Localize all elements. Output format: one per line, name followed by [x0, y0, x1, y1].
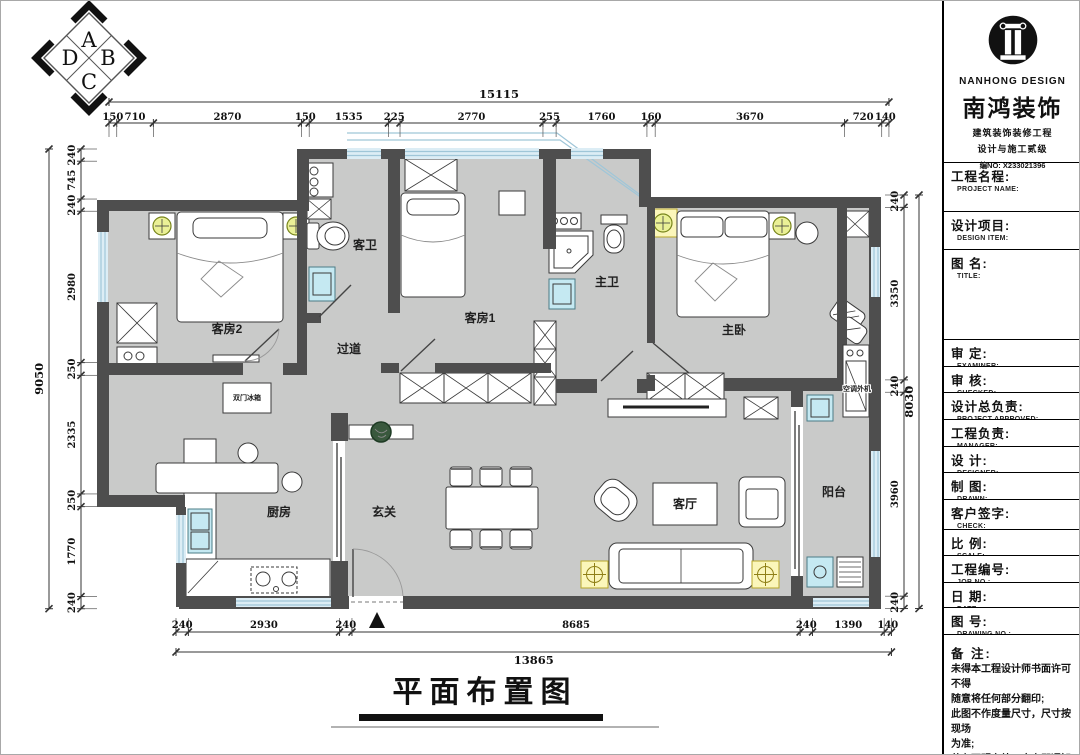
field-scale: 比 例: SCALE: [944, 529, 1080, 555]
dim-label: 140 [877, 620, 898, 631]
dim-label: 8685 [562, 620, 590, 631]
field-examiner: 审 定: EXAMINER: [944, 339, 1080, 366]
dim-label: 2930 [250, 620, 278, 631]
dim-label: 1770 [67, 538, 78, 566]
label-kitchen: 厨房 [267, 504, 291, 519]
compass-letter-d: D [62, 46, 79, 70]
drawing-title: 平面布置图 [331, 676, 659, 727]
dim-label: 2335 [67, 421, 78, 449]
dim-label: 9050 [32, 363, 46, 395]
label-guest-room2: 客房2 [211, 321, 243, 336]
dim-label: 2770 [458, 112, 486, 123]
field-drawing-no: 图 号: DRAWING NO.: [944, 607, 1080, 634]
field-design-item: 设计项目: DESIGN ITEM: [944, 211, 1080, 249]
field-manager: 工程负责: MANAGER: [944, 419, 1080, 446]
dim-label: 3960 [890, 480, 901, 508]
compass: A B C D [36, 5, 142, 111]
dim-label: 3350 [890, 280, 901, 308]
field-checked: 审 核: CHECKED: [944, 366, 1080, 392]
label-entry: 玄关 [372, 504, 396, 519]
company-header: NANHONG DESIGN 南鸿装饰 建筑装饰装修工程 设计与施工贰级 编NO… [944, 1, 1080, 162]
dim-label: 8030 [902, 386, 916, 418]
dim-label: 1390 [834, 620, 862, 631]
field-drawn: 制 图: DRAWN: [944, 472, 1080, 499]
dim-label: 140 [875, 112, 896, 123]
field-project-approved: 设计总负责: PROJECT APPROVED: [944, 392, 1080, 419]
cert-line2: 设计与施工贰级 [944, 142, 1080, 155]
dim-label: 240 [172, 620, 193, 631]
notes-section: 备 注: 未得本工程设计师书面许可不得 随意将任何部分翻印; 此图不作度量尺寸，… [944, 634, 1080, 755]
dim-label: 1535 [335, 112, 363, 123]
cert-line1: 建筑装饰装修工程 [944, 126, 1080, 139]
kitchen-slider [333, 441, 345, 561]
dim-label: 150 [295, 112, 316, 123]
label-ac-unit: 空调外机 [843, 384, 871, 393]
dining-table [446, 487, 538, 529]
dim-label: 150 [102, 112, 123, 123]
floor-plan: A B C D [1, 1, 942, 755]
dim-label: 240 [890, 191, 901, 212]
field-designer: 设 计: DESIGNER: [944, 446, 1080, 472]
washing-machine [807, 557, 833, 587]
title-block: NANHONG DESIGN 南鸿装饰 建筑装饰装修工程 设计与施工贰级 编NO… [942, 1, 1080, 755]
plant [371, 422, 391, 442]
drawing-sheet: A B C D [0, 0, 1080, 755]
dim-label: 710 [125, 112, 146, 123]
bed-guest1 [401, 193, 465, 297]
dim-label: 15115 [479, 87, 519, 101]
dim-label: 240 [890, 592, 901, 613]
entry-arrow [369, 612, 385, 628]
dim-label: 160 [641, 112, 662, 123]
dim-label: 1760 [588, 112, 616, 123]
compass-letter-b: B [100, 46, 115, 70]
ac-outdoor-unit [843, 345, 869, 417]
dim-label: 240 [335, 620, 356, 631]
label-corridor: 过道 [337, 341, 361, 356]
dim-label: 720 [853, 112, 874, 123]
dim-label: 240 [890, 376, 901, 397]
dim-label: 255 [539, 112, 560, 123]
field-title: 图 名: TITLE: [944, 249, 1080, 339]
field-date: 日 期: DATE: [944, 582, 1080, 607]
dim-label: 13865 [514, 653, 554, 667]
dim-label: 240 [67, 195, 78, 216]
notes-title: 备 注: [951, 643, 1074, 662]
dim-label: 240 [67, 145, 78, 166]
compass-letter-a: A [80, 28, 97, 52]
dim-label: 240 [67, 592, 78, 613]
dim-label: 2870 [214, 112, 242, 123]
label-guest-bath: 客卫 [352, 237, 377, 252]
dim-label: 3670 [736, 112, 764, 123]
kitchen-sink [188, 509, 212, 553]
balcony-slider [791, 407, 803, 576]
dim-label: 745 [67, 170, 78, 191]
dim-label: 250 [67, 358, 78, 379]
brand-name-en: NANHONG DESIGN [944, 76, 1080, 87]
toilet-master-bath [601, 215, 627, 224]
label-fridge: 双门冰箱 [233, 393, 261, 402]
field-job-no: 工程编号: JOB NO.: [944, 555, 1080, 582]
dim-label: 250 [67, 490, 78, 511]
brand-name-cn: 南鸿装饰 [944, 89, 1080, 123]
dim-label: 240 [796, 620, 817, 631]
label-master-bedroom: 主卧 [722, 322, 746, 337]
label-master-bath: 主卫 [595, 274, 619, 289]
field-client-signature: 客户签字: CHECK: [944, 499, 1080, 529]
drawing-title-text: 平面布置图 [393, 676, 578, 709]
dim-label: 225 [384, 112, 405, 123]
label-balcony: 阳台 [822, 484, 846, 499]
label-guest-room1: 客房1 [464, 310, 496, 325]
company-logo-icon [986, 13, 1040, 67]
label-living-room: 客厅 [672, 496, 697, 511]
dim-label: 2980 [67, 273, 78, 301]
compass-letter-c: C [81, 70, 97, 94]
